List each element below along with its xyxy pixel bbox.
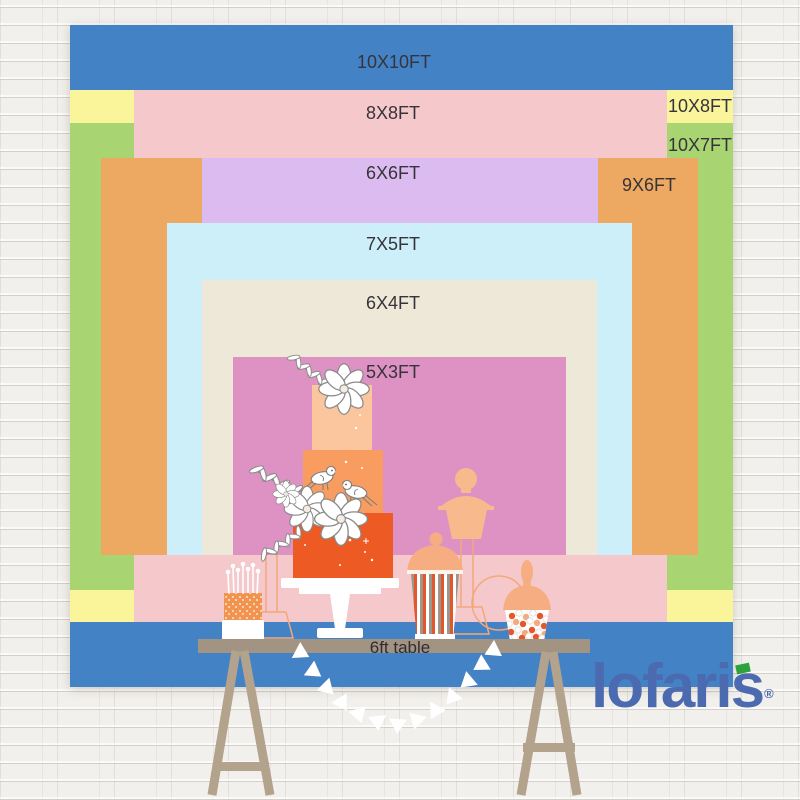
table-size-label: 6ft table <box>370 638 431 658</box>
registered-trademark-icon: ® <box>764 686 774 701</box>
cake-stand <box>281 578 399 638</box>
striped-candy-cup <box>407 533 463 641</box>
flower-icon <box>273 481 299 507</box>
table-leg-right-crossbar <box>523 743 575 752</box>
table-leg-left <box>212 651 270 795</box>
flower-icon <box>315 493 368 546</box>
flower-icon <box>319 364 369 414</box>
backdrop-size-chart-image: 10X10FT 8X8FT 10X8FT 10X7FT 6X6FT 9X6FT … <box>0 0 800 800</box>
lofaris-logo: lofaris® <box>591 656 774 718</box>
logo-text: lofaris <box>591 652 763 721</box>
candle-cake <box>222 562 264 644</box>
table-leg-right <box>521 652 577 795</box>
table-leg-left-crossbar <box>213 762 269 771</box>
candy-jar <box>503 560 551 641</box>
